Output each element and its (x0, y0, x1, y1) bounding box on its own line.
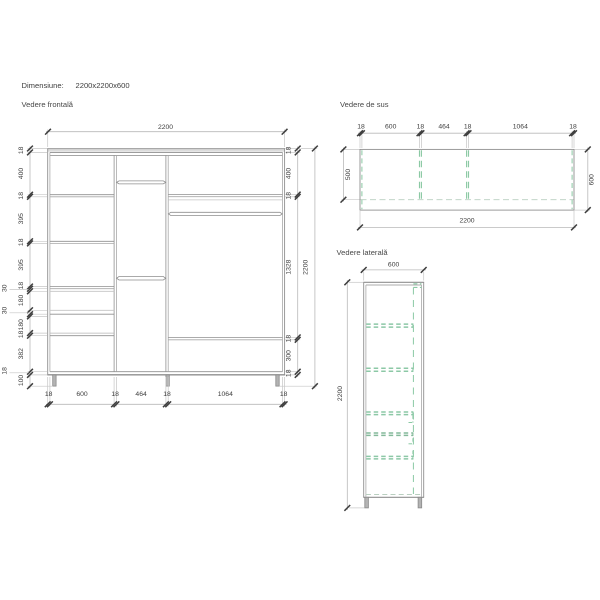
svg-text:18: 18 (417, 123, 425, 130)
svg-text:2200: 2200 (303, 260, 310, 275)
svg-text:464: 464 (438, 123, 450, 130)
svg-text:382: 382 (18, 348, 25, 360)
svg-text:18: 18 (285, 335, 292, 343)
svg-text:Vedere de sus: Vedere de sus (340, 100, 389, 109)
svg-text:2200: 2200 (337, 386, 344, 401)
svg-text:300: 300 (285, 350, 292, 362)
svg-text:18: 18 (18, 146, 25, 154)
svg-text:395: 395 (18, 259, 25, 271)
svg-text:18: 18 (163, 391, 171, 398)
svg-text:18: 18 (1, 367, 8, 375)
svg-text:18: 18 (285, 192, 292, 200)
svg-text:600: 600 (388, 261, 400, 268)
svg-text:100: 100 (18, 375, 25, 387)
svg-text:18: 18 (285, 369, 292, 377)
svg-text:1064: 1064 (218, 391, 233, 398)
svg-text:18: 18 (18, 282, 25, 290)
svg-text:18: 18 (464, 123, 472, 130)
svg-text:18: 18 (18, 238, 25, 246)
svg-text:18: 18 (357, 123, 365, 130)
svg-text:30: 30 (1, 307, 8, 315)
svg-text:600: 600 (589, 174, 596, 186)
svg-text:500: 500 (345, 169, 352, 181)
svg-text:400: 400 (18, 168, 25, 180)
svg-text:1328: 1328 (285, 259, 292, 274)
svg-text:Vedere frontală: Vedere frontală (22, 100, 74, 109)
svg-text:600: 600 (76, 391, 88, 398)
svg-text:464: 464 (135, 391, 147, 398)
svg-text:18: 18 (569, 123, 577, 130)
svg-text:180: 180 (18, 295, 25, 307)
svg-text:Vedere laterală: Vedere laterală (337, 248, 389, 257)
svg-text:18: 18 (18, 192, 25, 200)
svg-text:18: 18 (285, 146, 292, 154)
svg-text:180: 180 (18, 319, 25, 331)
svg-text:30: 30 (1, 284, 8, 292)
svg-text:2200: 2200 (459, 218, 474, 225)
svg-text:1064: 1064 (513, 123, 528, 130)
svg-text:Dimensiune:: Dimensiune: (22, 81, 64, 90)
svg-text:600: 600 (385, 123, 397, 130)
svg-text:18: 18 (280, 391, 288, 398)
svg-text:18: 18 (111, 391, 119, 398)
svg-text:2200: 2200 (158, 124, 173, 131)
svg-text:395: 395 (18, 213, 25, 225)
svg-text:2200x2200x600: 2200x2200x600 (76, 81, 130, 90)
svg-text:18: 18 (45, 391, 53, 398)
svg-text:400: 400 (285, 168, 292, 180)
svg-text:18: 18 (18, 330, 25, 338)
